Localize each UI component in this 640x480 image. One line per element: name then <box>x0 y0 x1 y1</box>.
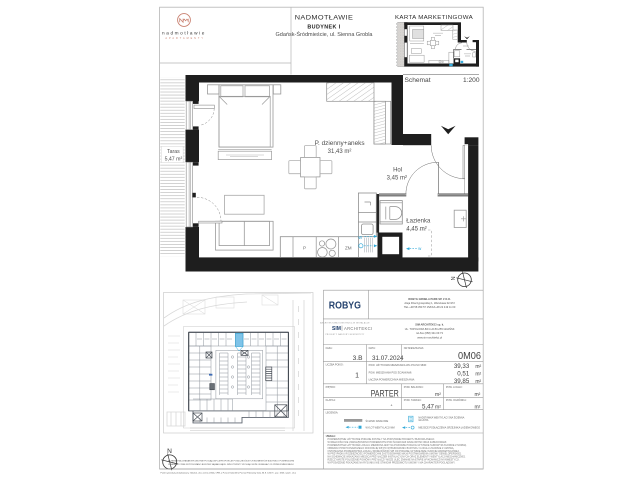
svg-text:SCHEMATYCZNIE WYRYSOWANO BUDYN: SCHEMATYCZNIE WYRYSOWANO BUDYNKI SĄSIADU… <box>168 463 294 466</box>
svg-text:m²: m² <box>474 404 480 410</box>
svg-text:31.07.2024: 31.07.2024 <box>372 355 404 362</box>
svg-text:POW. MIESZKANIA POD ŚCIANKAMI:: POW. MIESZKANIA POD ŚCIANKAMI: <box>369 371 413 374</box>
svg-text:m²: m² <box>475 364 481 370</box>
svg-text:POW. OGRÓDKA:: POW. OGRÓDKA: <box>446 399 467 402</box>
svg-text:PROJEKTY NADZORY EKSPERTYZY: PROJEKTY NADZORY EKSPERTYZY <box>325 333 365 336</box>
svg-text:5,47 m²: 5,47 m² <box>165 157 183 163</box>
svg-text:5,47: 5,47 <box>422 403 435 410</box>
svg-text:LEGENDA:: LEGENDA: <box>326 412 339 415</box>
svg-text:nadmotławie: nadmotławie <box>162 30 206 35</box>
svg-text:Gdańsk-Śródmieście, ul. Sienna: Gdańsk-Śródmieście, ul. Sienna Grobla <box>276 30 373 38</box>
svg-text:PIĘTRO:: PIĘTRO: <box>326 386 336 389</box>
svg-text:0,51: 0,51 <box>457 371 470 378</box>
svg-text:39,33: 39,33 <box>454 363 470 370</box>
svg-text:PARTER: PARTER <box>371 388 399 399</box>
svg-text:www.sim-architekci.pl: www.sim-architekci.pl <box>417 336 442 340</box>
svg-text:Hol: Hol <box>393 167 402 173</box>
svg-text:ŁĄCZNA POWIERZCHNIA MIESZKANIA: ŁĄCZNA POWIERZCHNIA MIESZKANIA: <box>369 379 416 382</box>
svg-text:+: + <box>391 404 393 408</box>
svg-text:NR MIESZKANIA:: NR MIESZKANIA: <box>404 347 424 350</box>
svg-text:LICZBA POKOI:: LICZBA POKOI: <box>326 364 344 367</box>
svg-text:BUDYNEK I: BUDYNEK I <box>307 25 340 31</box>
svg-text:ŚCIANKI DZIAŁOWE: ŚCIANKI DZIAŁOWE <box>366 420 389 423</box>
svg-text:4,45 m²: 4,45 m² <box>406 226 426 232</box>
svg-text:POW. LOGGII:: POW. LOGGII: <box>446 386 463 389</box>
svg-text:POW. BALKONU:: POW. BALKONU: <box>404 386 424 389</box>
svg-text:NADMOTŁAWIE: NADMOTŁAWIE <box>295 14 354 21</box>
svg-text:1: 1 <box>355 372 359 379</box>
svg-text:m²: m² <box>475 379 481 385</box>
svg-text:ROBYG GROBLA PARK SP. Z O.O.: ROBYG GROBLA PARK SP. Z O.O. <box>408 297 451 301</box>
svg-text:Łazienka: Łazienka <box>406 218 431 224</box>
svg-text:3,45 m²: 3,45 m² <box>387 175 407 181</box>
svg-text:SCHEMAT MA CHARAKTER JEDYNIE P: SCHEMAT MA CHARAKTER JEDYNIE POGLĄDOWY, … <box>168 459 294 462</box>
svg-text:ZM: ZM <box>345 245 352 250</box>
svg-text:GŁUCHA: GŁUCHA <box>418 419 428 422</box>
svg-text:SIM: SIM <box>332 326 341 332</box>
svg-text:POW. TARASU:: POW. TARASU: <box>404 399 422 402</box>
svg-text:WYPOSAŻENIE POKAZANE NA RYSUNK: WYPOSAŻENIE POKAZANE NA RYSUNKU NIE STAN… <box>328 461 456 464</box>
svg-text:m²: m² <box>474 392 480 398</box>
svg-text:ARCHITEKTURA KONSTRUKCJE INSTA: ARCHITEKTURA KONSTRUKCJE INSTALACJE <box>320 322 370 325</box>
svg-text:MIEJSCE PODŁĄCZENIA GRZEJNIKA: MIEJSCE PODŁĄCZENIA GRZEJNIKA ŁAZIENKOWE… <box>418 427 480 430</box>
svg-text:39,85: 39,85 <box>454 378 470 385</box>
svg-text:tel./fax (058) 341 09 73: tel./fax (058) 341 09 73 <box>416 331 443 335</box>
svg-text:W: W <box>358 235 362 240</box>
svg-text:WYLOT WENTYLACJI WM: WYLOT WENTYLACJI WM <box>366 427 395 430</box>
svg-text:0M06: 0M06 <box>458 351 481 362</box>
svg-text:1:200: 1:200 <box>463 77 480 84</box>
svg-text:TEL +48 58 350 57 15/FAX+48 22: TEL +48 58 350 57 15/FAX+48 22 419 11 00 <box>404 305 456 309</box>
svg-text:FAZA:: FAZA: <box>326 347 333 350</box>
svg-text:KLATKA:: KLATKA: <box>326 399 336 402</box>
svg-text:m²: m² <box>475 372 481 378</box>
svg-text:UL. TOPOLOWA 8/9 LU2 80-255 GD: UL. TOPOLOWA 8/9 LU2 80-255 GDAŃSK <box>405 327 455 331</box>
svg-text:ROBYG: ROBYG <box>329 300 361 311</box>
svg-text:KARTA MARKETINGOWA: KARTA MARKETINGOWA <box>395 15 473 21</box>
svg-text:ARCHITEKCI: ARCHITEKCI <box>344 326 372 331</box>
svg-text:m²: m² <box>435 392 441 398</box>
svg-text:P: P <box>303 245 306 250</box>
svg-text:APARTAMENTY: APARTAMENTY <box>165 37 205 40</box>
svg-text:Aleja Rzeczypospolitej 1, Wars: Aleja Rzeczypospolitej 1, Warszawa 02-97… <box>404 301 455 305</box>
svg-text:Punkt sprzedaży zlokalizowany:: Punkt sprzedaży zlokalizowany: Gdańsk, u… <box>161 472 297 475</box>
svg-text:m²: m² <box>435 404 441 410</box>
svg-text:SIM ARCHITEKCI sp. k.: SIM ARCHITEKCI sp. k. <box>415 322 444 326</box>
svg-text:Schemat: Schemat <box>405 77 431 84</box>
svg-text:DATA:: DATA: <box>369 347 376 350</box>
svg-text:31,43 m²: 31,43 m² <box>328 149 352 155</box>
svg-text:POW. UŻYTKOWA MIESZKANIA WG PN: POW. UŻYTKOWA MIESZKANIA WG PN-ISO 9836: <box>369 364 427 367</box>
svg-text:N: N <box>451 276 457 280</box>
svg-text:P. dzienny+aneks: P. dzienny+aneks <box>315 140 365 147</box>
svg-text:Taras: Taras <box>167 149 180 155</box>
svg-text:3.B: 3.B <box>353 355 363 362</box>
